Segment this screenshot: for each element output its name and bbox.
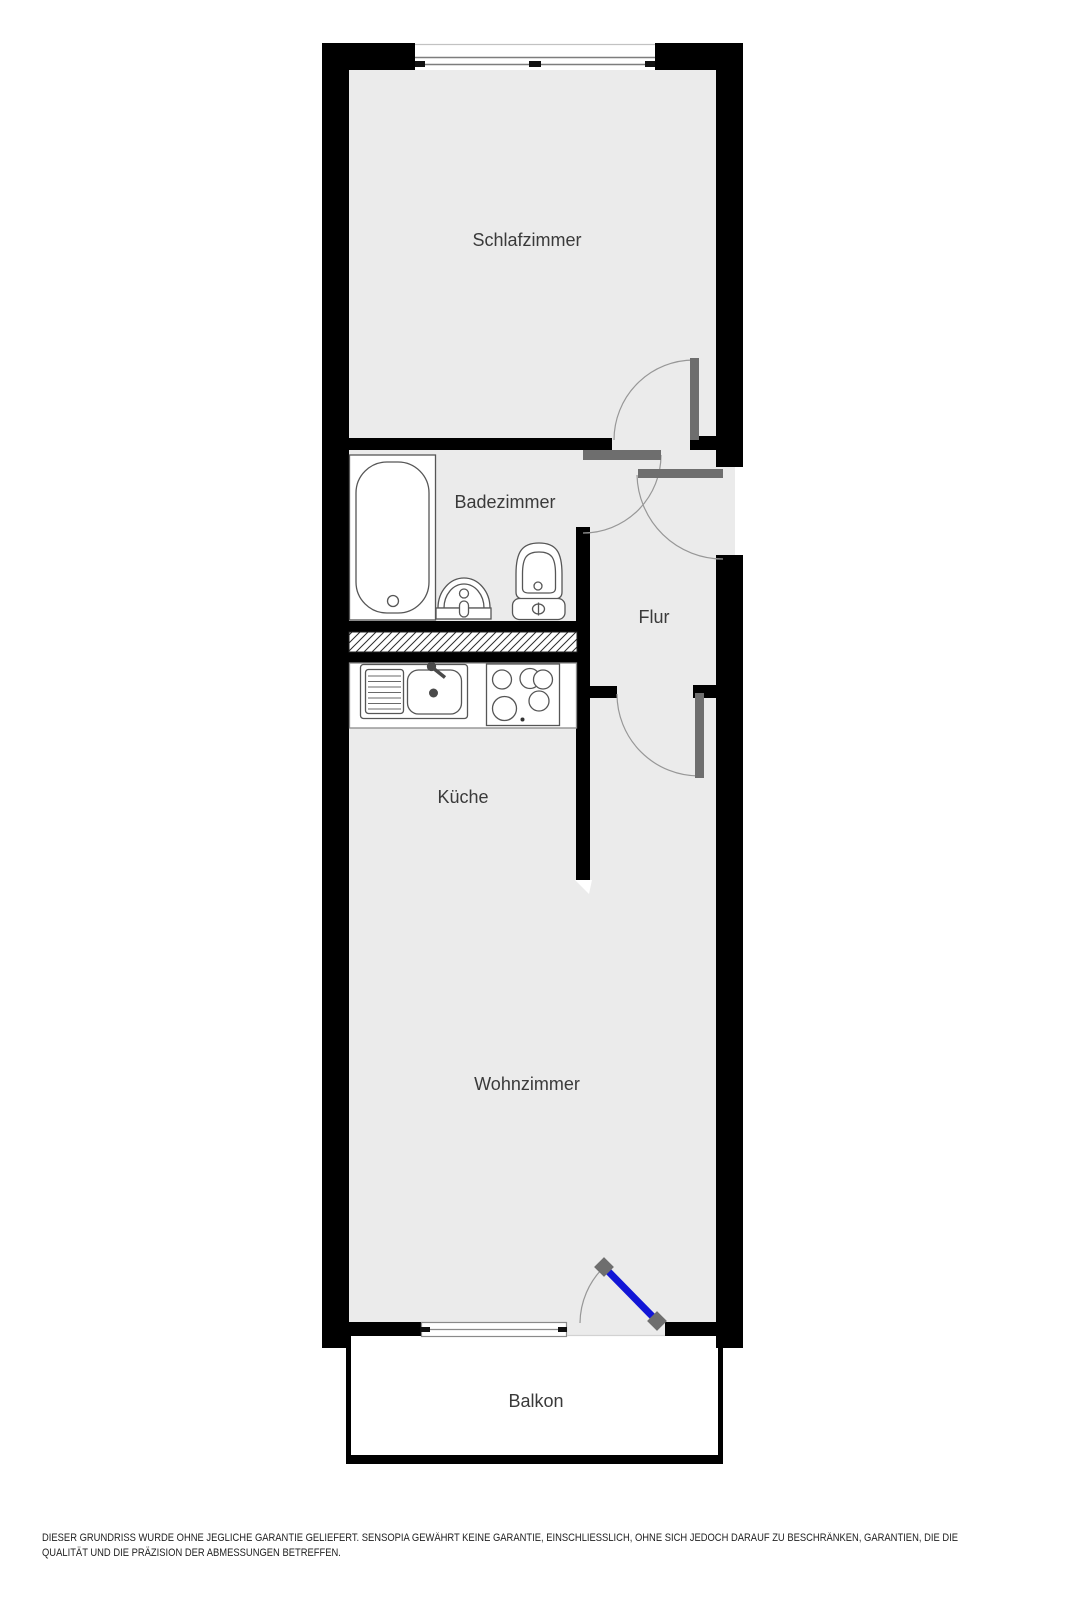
floor-plan: Schlafzimmer Badezimmer Flur Küche Wohnz… (0, 0, 1067, 1600)
room-label-flur: Flur (639, 607, 670, 627)
livingroom-door-leaf (695, 693, 704, 778)
floor-plan-page: Schlafzimmer Badezimmer Flur Küche Wohnz… (0, 0, 1067, 1600)
wall-hall-vertical (576, 527, 590, 880)
room-label-wohnzimmer: Wohnzimmer (474, 1074, 580, 1094)
stove-burner (534, 670, 553, 689)
entrance-doorway-floor (716, 467, 735, 555)
wall-bottom-right (665, 1322, 716, 1336)
stove-burner (529, 691, 549, 711)
window-top (415, 43, 655, 70)
bathroom-door-leaf (583, 450, 661, 460)
stove-burner (493, 670, 512, 689)
kitchen-fixtures (350, 663, 577, 729)
wall-top-left (349, 43, 415, 70)
wall-bathroom-bottom (349, 621, 590, 632)
bathroom-sink-faucet (460, 601, 469, 617)
wall-bottom-left (349, 1322, 421, 1336)
shaft-hatch (349, 632, 577, 652)
wall-below-shaft (349, 652, 577, 663)
room-label-badezimmer: Badezimmer (454, 492, 555, 512)
kitchen-sink-drain (429, 689, 438, 698)
kitchen-sink (361, 663, 468, 719)
room-label-kueche: Küche (437, 787, 488, 807)
bedroom-door-leaf (690, 358, 699, 440)
wall-right-upper (716, 43, 743, 467)
bathtub (350, 455, 436, 620)
disclaimer: DIESER GRUNDRISS WURDE OHNE JEGLICHE GAR… (42, 1531, 999, 1561)
stove (487, 664, 560, 726)
toilet (513, 543, 566, 620)
disclaimer-line-1: DIESER GRUNDRISS WURDE OHNE JEGLICHE GAR… (42, 1531, 999, 1546)
bathtub-drain (388, 596, 399, 607)
stove-burner (493, 697, 517, 721)
disclaimer-line-2: QUALITÄT UND DIE PRÄZISION DER ABMESSUNG… (42, 1546, 999, 1561)
wall-livingroom-door-stub-left (590, 686, 617, 698)
room-label-balkon: Balkon (508, 1391, 563, 1411)
room-label-schlafzimmer: Schlafzimmer (472, 230, 581, 250)
wall-right-lower (716, 555, 743, 1348)
entrance-door-leaf (638, 469, 723, 478)
wall-left (322, 43, 349, 1348)
stove-knob-dot (521, 718, 525, 722)
wall-bedroom-bottom (349, 438, 612, 450)
